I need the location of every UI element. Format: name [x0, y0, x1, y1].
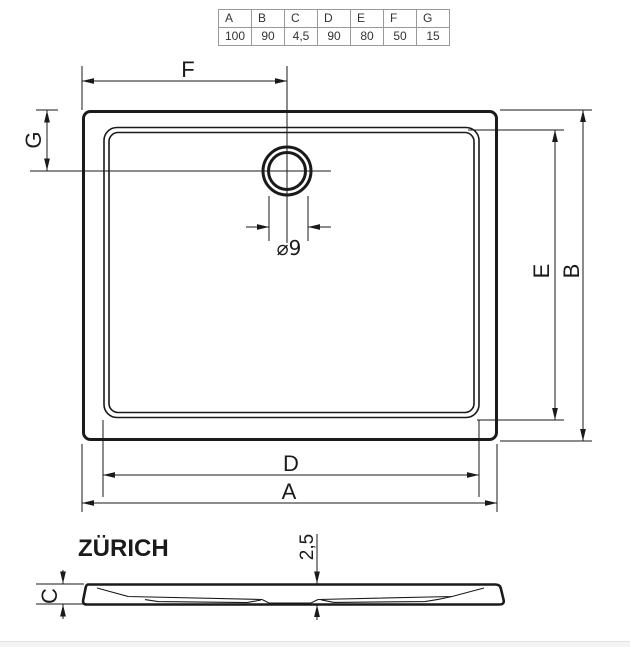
drain-diameter-label: ⌀9 [277, 236, 302, 260]
dim-label-e: E [529, 264, 554, 279]
footer-divider [0, 641, 630, 647]
model-name-label: ZÜRICH [78, 535, 169, 562]
tray-rim-inner-line [109, 133, 474, 413]
dimension-annotations: F G E B D A [21, 57, 592, 512]
depth-label: 2,5 [297, 534, 318, 560]
drawing-page: A B C D E F G 100 90 4,5 90 80 50 15 [0, 0, 630, 647]
dim-label-c: C [37, 588, 62, 604]
dim-label-a: A [282, 479, 297, 504]
top-view [30, 66, 497, 440]
dim-label-b: B [559, 264, 584, 279]
tray-outer-outline [84, 112, 497, 440]
technical-drawing: F G E B D A [0, 0, 630, 647]
side-profile-outline [83, 585, 504, 605]
side-view: ZÜRICH C 2,5 [36, 534, 504, 620]
dim-label-g: G [21, 131, 46, 148]
dim-label-f: F [181, 57, 194, 82]
dim-label-d: D [283, 451, 299, 476]
